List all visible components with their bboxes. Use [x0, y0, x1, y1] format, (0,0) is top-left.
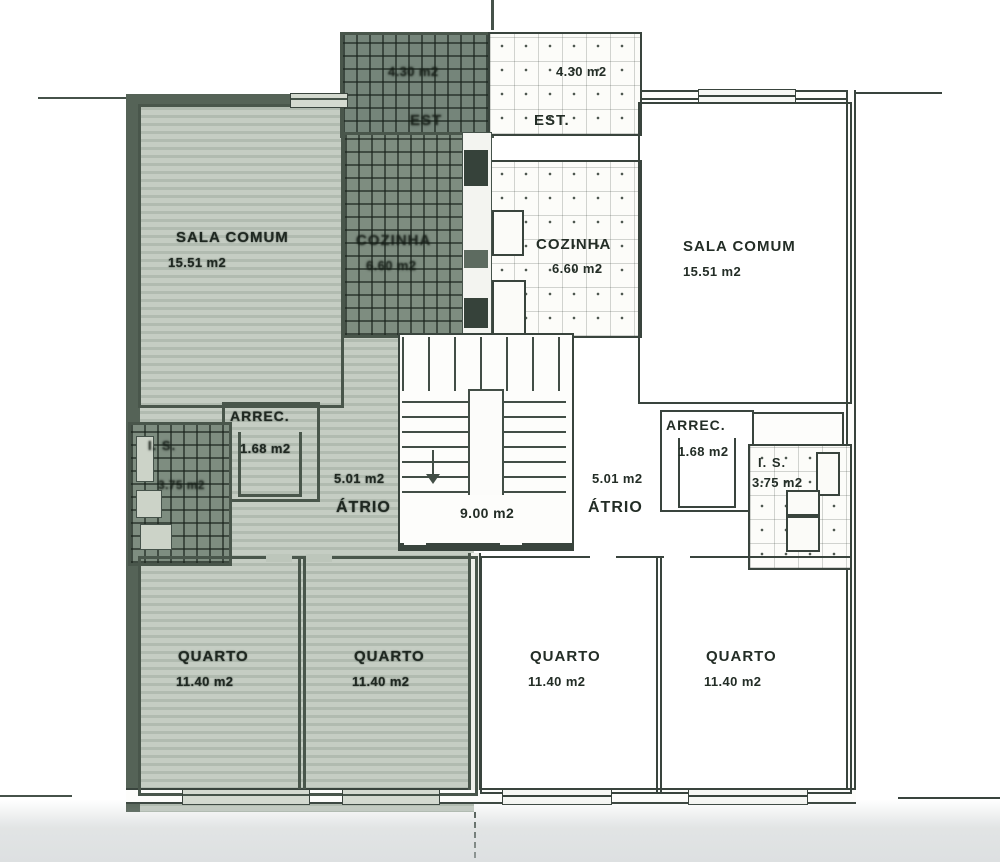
area-label: 6.60 m2 — [552, 261, 603, 276]
room-label: COZINHA — [356, 232, 431, 249]
room-label: COZINHA — [536, 236, 611, 253]
area-label: 4.30 m2 — [388, 64, 439, 79]
room-label: EST — [410, 112, 442, 129]
room-label: QUARTO — [530, 648, 601, 665]
room-label: QUARTO — [706, 648, 777, 665]
window-top-right — [698, 89, 796, 103]
axis-tick-top — [491, 0, 494, 30]
stair-arrow-stem — [432, 450, 434, 476]
bath-toilet — [786, 516, 820, 552]
stair-flight-upper — [402, 337, 566, 391]
ref-line-bottom-right — [898, 797, 1000, 799]
room-label: ARREC. — [666, 417, 726, 433]
room-label: SALA COMUM — [683, 238, 796, 255]
area-label: 15.51 m2 — [168, 255, 226, 270]
door-opening — [404, 535, 426, 545]
bath-fixture — [140, 524, 172, 550]
ref-line-left — [38, 97, 128, 99]
kitchen-sink — [492, 280, 526, 336]
shaft-duct — [464, 250, 488, 268]
stair-core — [468, 389, 504, 497]
stair-arrow-head — [426, 474, 440, 484]
scan-shading — [0, 800, 1000, 862]
room-label: EST. — [534, 112, 570, 129]
area-label: 1.68 m2 — [678, 444, 729, 459]
room-label: I. S. — [148, 438, 176, 453]
area-label: 6.60 m2 — [366, 258, 417, 273]
door-opening — [500, 535, 522, 545]
shaft-duct — [464, 298, 488, 328]
bath-fixture — [136, 490, 162, 518]
shaft-duct — [464, 150, 488, 186]
is-right-closet — [752, 412, 844, 448]
ref-line-right — [854, 92, 942, 94]
area-label: 3.75 m2 — [752, 475, 803, 490]
room-label: SALA COMUM — [176, 229, 289, 246]
area-label: 3.75 m2 — [158, 478, 205, 492]
room-label: ÁTRIO — [588, 499, 643, 517]
room-label: I. S. — [758, 455, 786, 470]
door-opening — [306, 554, 332, 562]
area-label: 11.40 m2 — [352, 674, 409, 689]
area-label: 11.40 m2 — [528, 674, 585, 689]
room-label: QUARTO — [354, 648, 425, 665]
room-label: ÁTRIO — [336, 499, 391, 517]
area-label: 5.01 m2 — [592, 471, 643, 486]
kitchen-counter — [492, 210, 524, 256]
area-label: 11.40 m2 — [176, 674, 233, 689]
area-label: 4.30 m2 — [556, 64, 607, 79]
area-label: 5.01 m2 — [334, 471, 385, 486]
door-opening — [266, 554, 292, 562]
door-opening — [664, 554, 690, 562]
window-top-left — [290, 93, 348, 108]
room-label: QUARTO — [178, 648, 249, 665]
room-label: ARREC. — [230, 408, 290, 424]
area-label: 15.51 m2 — [683, 264, 741, 279]
area-label: 9.00 m2 — [460, 505, 514, 521]
floor-plan-scan: SALA COMUM 15.51 m2 COZINHA 6.60 m2 4.30… — [0, 0, 1000, 862]
door-opening — [590, 554, 616, 562]
ref-line-bottom-left — [0, 795, 72, 797]
area-label: 1.68 m2 — [240, 441, 291, 456]
stair-flight-right — [500, 391, 566, 493]
bath-bidet — [786, 490, 820, 516]
area-label: 11.40 m2 — [704, 674, 761, 689]
